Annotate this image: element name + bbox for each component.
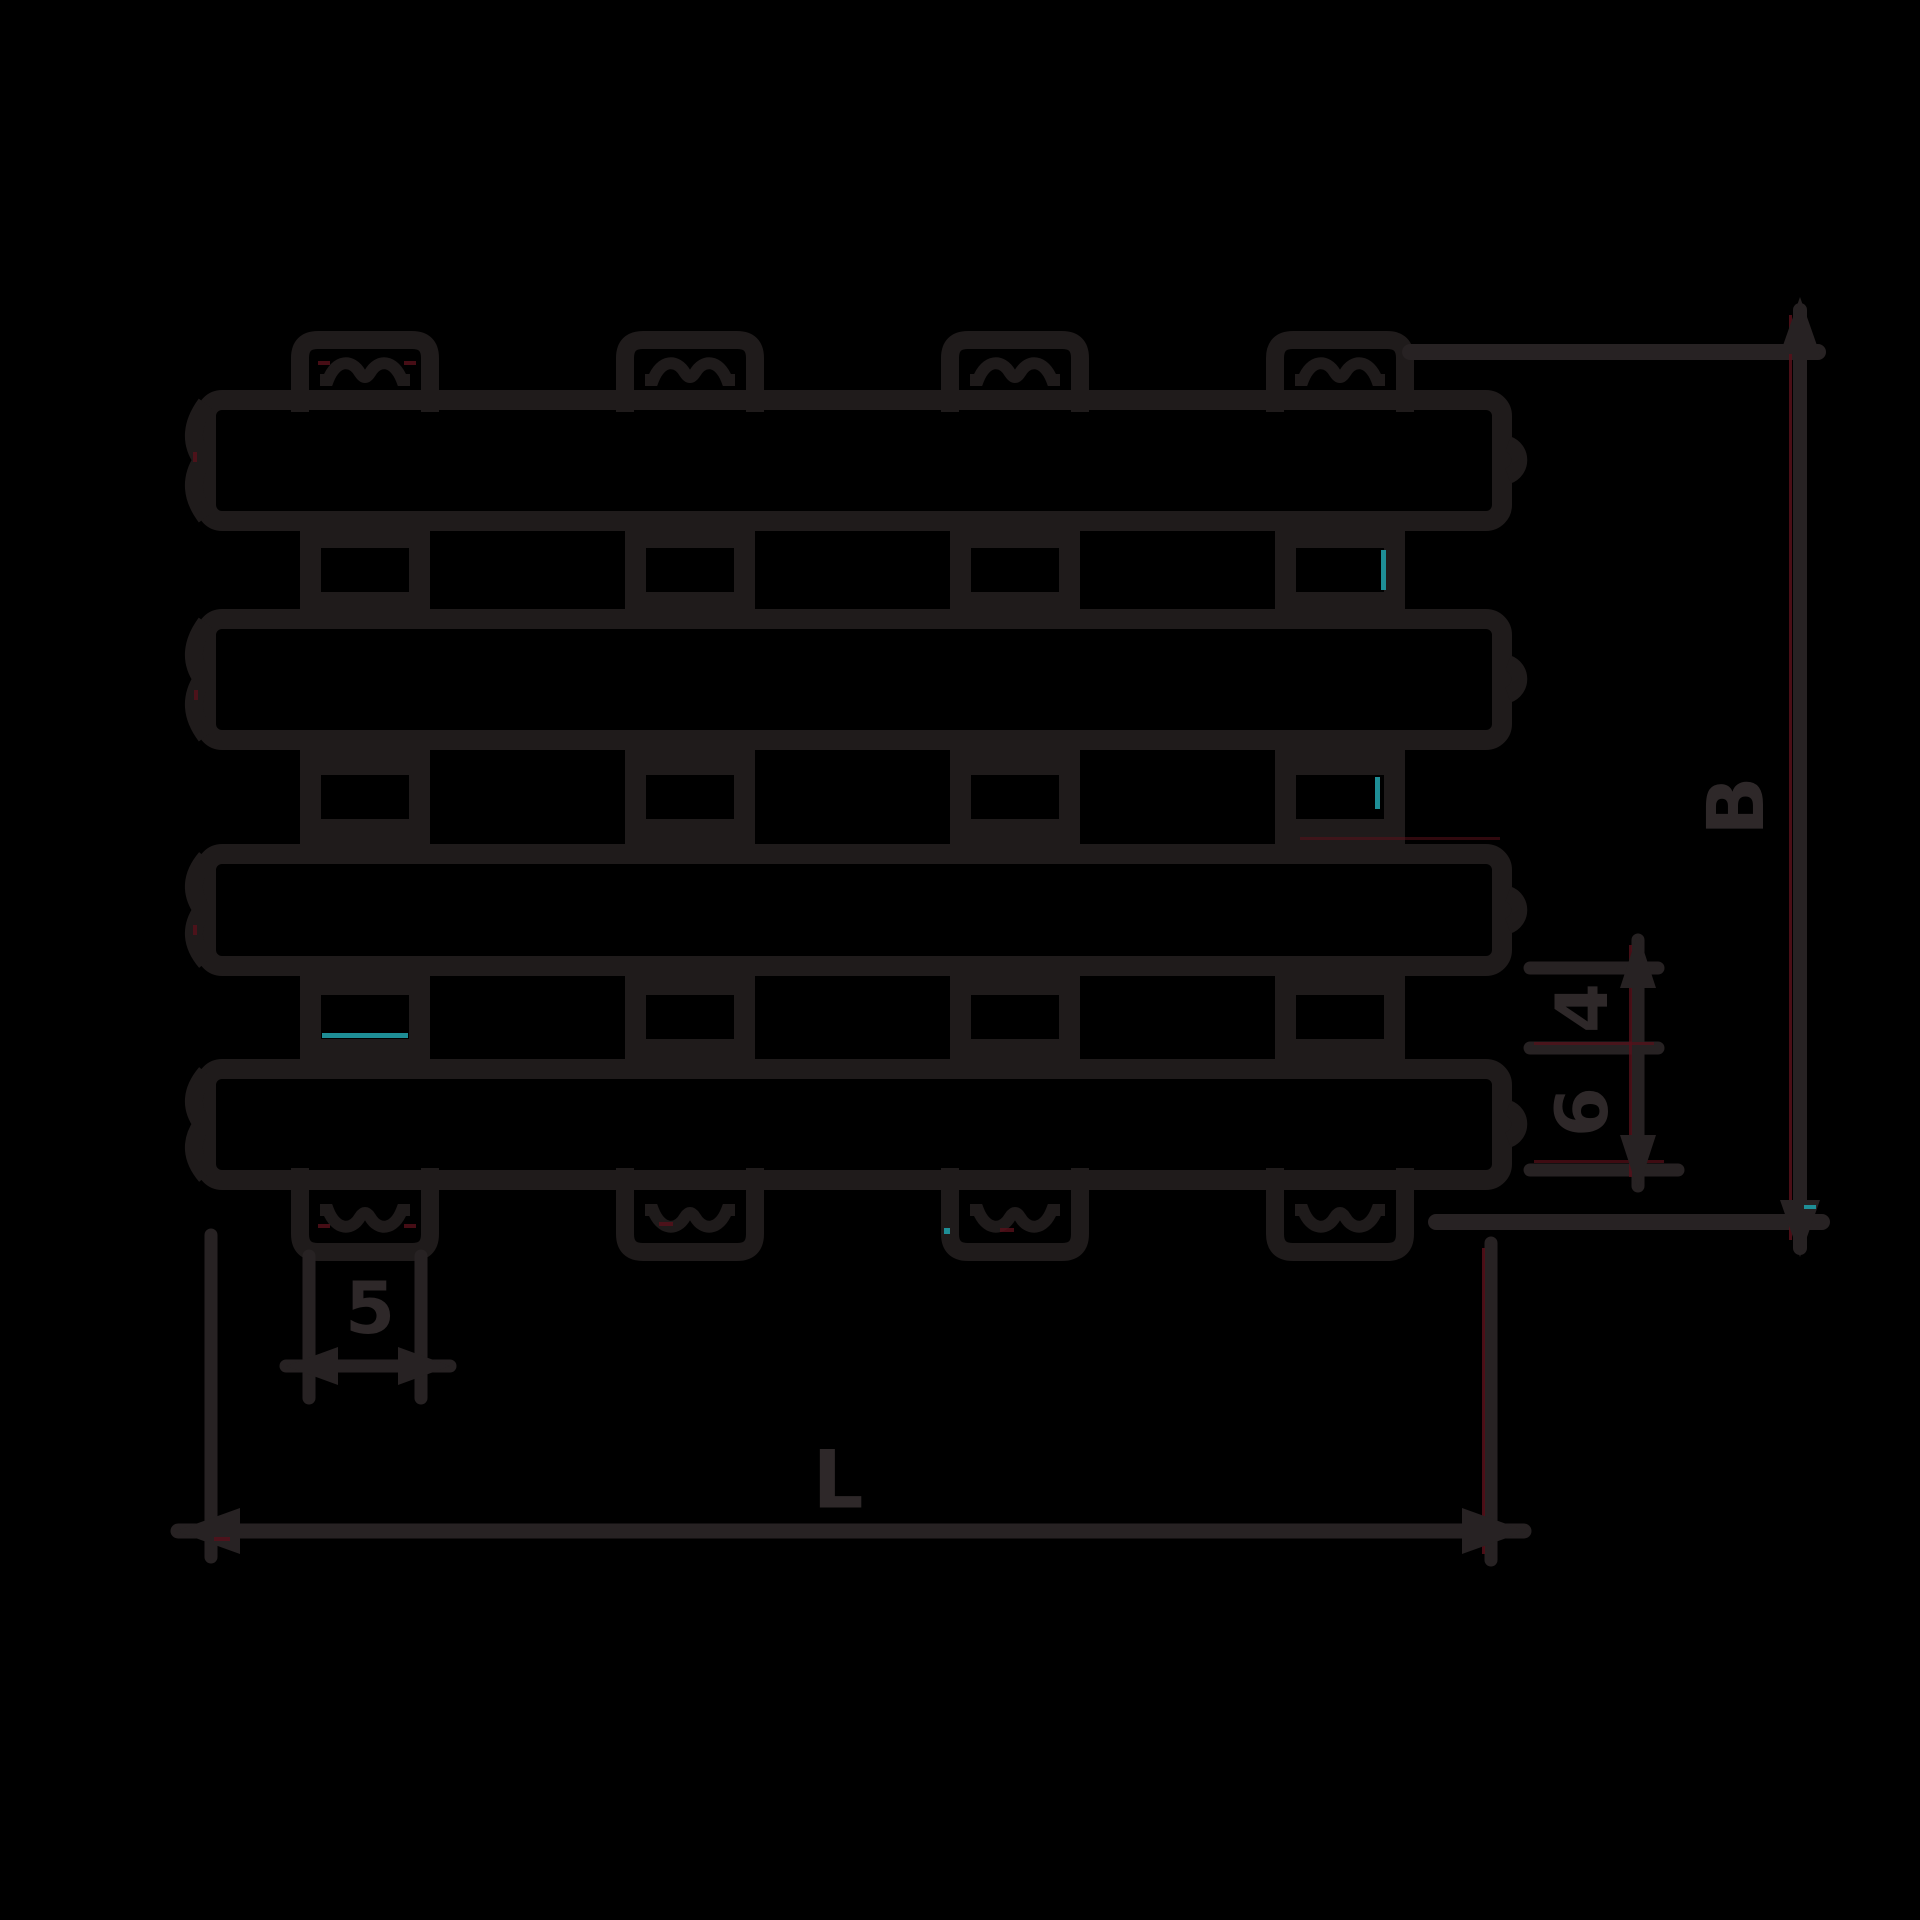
red-accent-hairline [1300, 837, 1500, 840]
teal-accent-dot [944, 1228, 950, 1234]
height-dim-red-hairline [1789, 315, 1792, 1240]
height-dim-label: B [1692, 776, 1782, 835]
gap-dim-label: 4 [1540, 983, 1624, 1033]
red-accent-dot [193, 452, 197, 462]
red-accent-tick [404, 1224, 416, 1228]
red-accent-tick [659, 1222, 673, 1226]
lug-width-dim-label: 5 [345, 1266, 395, 1350]
red-accent-tick [318, 1224, 330, 1228]
red-accent-tick [1000, 1228, 1014, 1232]
slat-2-wavy-end [194, 623, 206, 736]
thickness-dim-label: 6 [1540, 1087, 1624, 1137]
length-dim-label: L [813, 1434, 864, 1527]
red-accent-tick [404, 361, 416, 365]
slat-3-wavy-end [194, 858, 206, 962]
teal-accent-hole-edge [1375, 777, 1380, 809]
length-ext-red-hairline [1482, 1248, 1485, 1554]
gap-ext-mid-red-hairline [1534, 1042, 1654, 1045]
teal-accent-hole-edge [322, 1033, 408, 1038]
teal-accent-dot [1804, 1205, 1816, 1209]
red-accent-tick [214, 1537, 230, 1541]
drawing-canvas: B 4 6 5 L [0, 0, 1920, 1920]
red-accent-dot [193, 925, 197, 935]
slatted-panel-dimension-drawing: B 4 6 5 L [0, 0, 1920, 1920]
red-accent-dot [194, 690, 198, 700]
teal-accent-hole-edge [1381, 550, 1386, 590]
red-accent-tick [318, 361, 330, 365]
slat-4-wavy-end [194, 1073, 206, 1176]
